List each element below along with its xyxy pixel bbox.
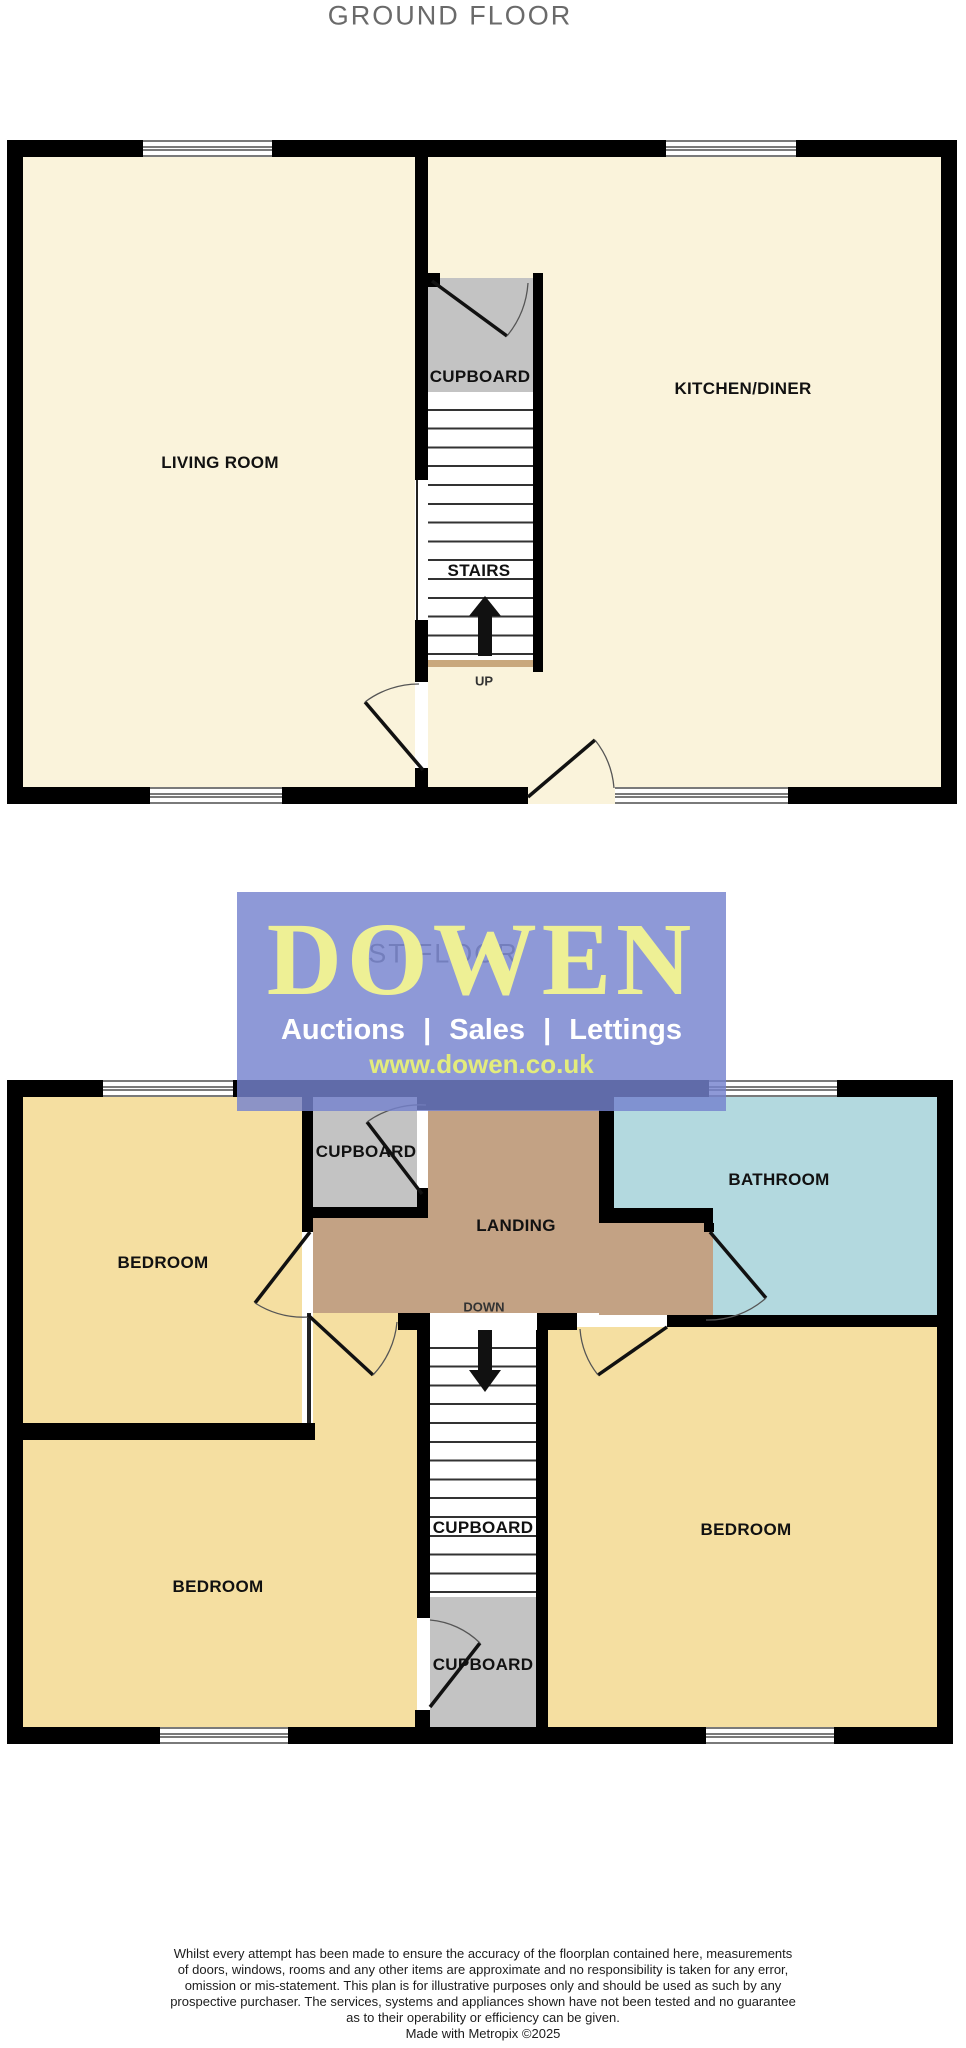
ground-door-stub [415, 768, 428, 787]
landing-area-east [599, 1223, 713, 1315]
ground-wall-right [941, 140, 957, 804]
bathroom-door-stub [704, 1223, 714, 1232]
disclaimer-line: omission or mis-statement. This plan is … [0, 1978, 966, 1994]
first-cupboard-bottom-area [430, 1597, 536, 1727]
dowen-logo-brand: DOWEN [237, 908, 726, 1012]
up-arrow-icon [469, 596, 501, 616]
bedroom-bottom-left-area [23, 1440, 417, 1727]
bedroom-bottom-left-extension [313, 1313, 417, 1440]
first-divider-top-left [302, 1097, 313, 1232]
window [103, 1080, 233, 1097]
first-stair-wall-right [536, 1330, 548, 1727]
floorplan-page: GROUND FLOOR 1ST FLOOR [0, 0, 966, 2048]
down-arrow-shaft [478, 1330, 492, 1370]
metropix-credit: Made with Metropix ©2025 [0, 2026, 966, 2042]
window [143, 140, 272, 157]
dowen-logo: DOWEN Auctions | Sales | Lettings www.do… [237, 892, 726, 1111]
first-divider-thin [307, 1313, 311, 1437]
ground-wall-left [7, 140, 23, 804]
bedroom-top-left-area [23, 1097, 302, 1423]
disclaimer-line: prospective purchaser. The services, sys… [0, 1994, 966, 2010]
window [150, 787, 282, 804]
window [706, 1727, 834, 1744]
disclaimer: Whilst every attempt has been made to en… [0, 1946, 966, 2042]
up-arrow-shaft [478, 614, 492, 656]
down-arrow-icon [469, 1370, 501, 1392]
cupboard-top-bottom-wall [313, 1207, 428, 1218]
landing-area-west [313, 1218, 428, 1313]
landing-stub-right [537, 1313, 577, 1330]
first-wall-right [937, 1080, 953, 1744]
ground-divider-wall-lower [415, 620, 428, 682]
ground-stair-edge-line [416, 480, 418, 622]
window [709, 1080, 837, 1097]
ground-floor-title: GROUND FLOOR [328, 1, 573, 32]
ground-stair-wall-right [533, 273, 543, 672]
bathroom-left-wall [599, 1097, 614, 1223]
dowen-logo-tagline: Auctions | Sales | Lettings [237, 1014, 726, 1047]
landing-stub-left [398, 1313, 430, 1330]
entrance-door-opening [528, 787, 615, 804]
disclaimer-line: as to their operability or efficiency ca… [0, 2010, 966, 2026]
dowen-logo-website: www.dowen.co.uk [237, 1049, 726, 1080]
first-cupboard-top-area [313, 1097, 417, 1207]
living-room-area [23, 157, 415, 787]
landing-area [428, 1110, 599, 1313]
ground-cupboard-area [428, 278, 533, 392]
cupboard-top-stub [417, 1188, 428, 1218]
bottom-cupboard-stub [415, 1710, 430, 1727]
window [615, 787, 788, 804]
first-wall-left [7, 1080, 23, 1744]
bedroom-right-top-wall [667, 1315, 937, 1327]
bedroom-right-area [548, 1327, 937, 1727]
stair-bottom-strip [428, 660, 533, 667]
ground-divider-wall-upper [415, 157, 428, 480]
first-stair-wall-left [417, 1330, 430, 1618]
window [666, 140, 796, 157]
bedrooms-divider-wall [7, 1423, 315, 1440]
ground-cupboard-stub [427, 273, 440, 287]
disclaimer-line: of doors, windows, rooms and any other i… [0, 1962, 966, 1978]
window [160, 1727, 288, 1744]
disclaimer-line: Whilst every attempt has been made to en… [0, 1946, 966, 1962]
bathroom-bottom-wall [599, 1208, 713, 1223]
